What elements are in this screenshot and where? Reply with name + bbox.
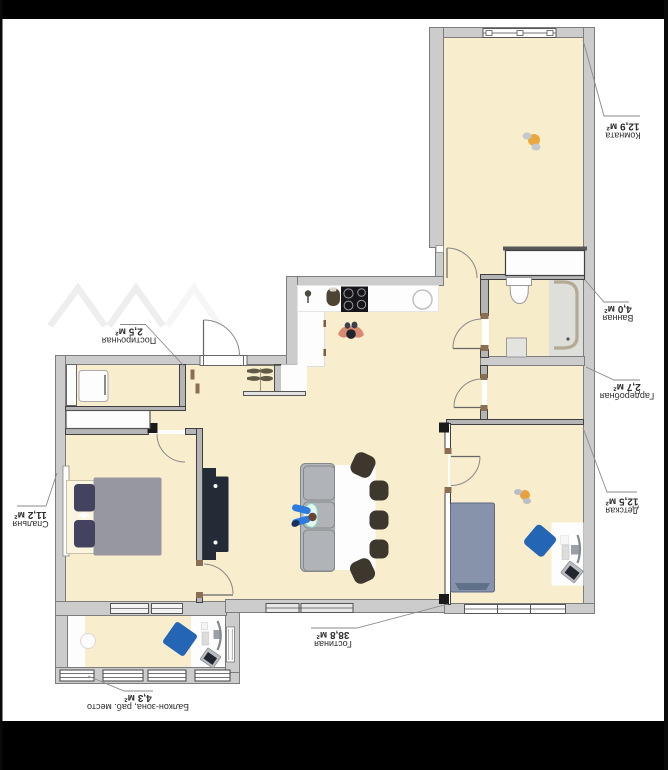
svg-text:2,5 м²: 2,5 м² [115, 326, 143, 337]
svg-text:12,9 м²: 12,9 м² [606, 121, 640, 132]
svg-text:12,5 м²: 12,5 м² [605, 496, 639, 507]
svg-text:4,3 м²: 4,3 м² [124, 692, 152, 703]
svg-text:2,7 м²: 2,7 м² [613, 381, 641, 392]
svg-text:38,8 м²: 38,8 м² [316, 629, 350, 640]
svg-text:11,2 м²: 11,2 м² [14, 509, 47, 520]
svg-text:4,0 м²: 4,0 м² [604, 303, 632, 314]
